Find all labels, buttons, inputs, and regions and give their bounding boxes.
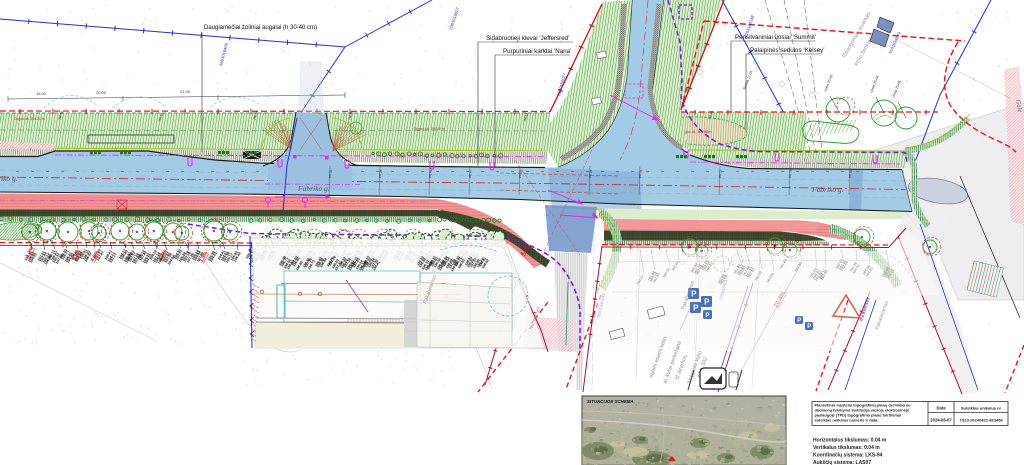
svg-text:P: P: [693, 304, 699, 313]
svg-text:Uosis 25-04: Uosis 25-04: [869, 75, 880, 93]
svg-text:0100160027: 0100160027: [556, 72, 567, 96]
svg-text:Suteiktas unikalus nr: Suteiktas unikalus nr: [961, 406, 1002, 411]
svg-text:PK 43: PK 43: [428, 169, 433, 178]
svg-text:15.00: 15.00: [36, 91, 47, 96]
svg-text:SITUACIJOS SCHEMA: SITUACIJOS SCHEMA: [587, 399, 634, 404]
svg-text:21.00: 21.00: [180, 89, 191, 94]
svg-text:PK 38: PK 38: [378, 169, 383, 178]
svg-text:P: P: [807, 324, 811, 330]
svg-text:PK 79: PK 79: [788, 169, 793, 178]
svg-text:Fabriko g.: Fabriko g.: [297, 184, 330, 193]
svg-text:Fabriko g.: Fabriko g.: [0, 174, 18, 183]
svg-text:P: P: [704, 298, 710, 307]
svg-text:Dugno alt. 154.20 m: Dugno alt. 154.20 m: [14, 117, 45, 121]
svg-text:20.00: 20.00: [96, 90, 107, 95]
svg-text:0301016027: 0301016027: [448, 6, 460, 30]
svg-text:PK 47: PK 47: [468, 169, 473, 178]
svg-text:Purpuriniai karklai ‘Nana’: Purpuriniai karklai ‘Nana’: [503, 48, 571, 55]
svg-text:suteiktas unikalus numeris ir: suteiktas unikalus numeris ir data.: [815, 418, 879, 423]
svg-text:Fabriko g.: Fabriko g.: [811, 185, 844, 194]
svg-text:Koordinačių sistema: LKS-94: Koordinačių sistema: LKS-94: [813, 453, 883, 459]
svg-text:PK 64: PK 64: [638, 169, 643, 178]
svg-text:PK 59: PK 59: [588, 169, 593, 178]
svg-text:Sedula 12-01: Sedula 12-01: [742, 70, 753, 90]
svg-text:6501016406: 6501016406: [218, 42, 229, 66]
svg-text:Horizontalus tikslumas: 0.04: Horizontalus tikslumas: 0.04 m: [813, 438, 887, 444]
svg-text:PK 72: PK 72: [718, 169, 723, 178]
svg-text:PK 85: PK 85: [848, 169, 853, 178]
svg-text:P: P: [706, 313, 710, 319]
svg-text:PK 52: PK 52: [518, 169, 523, 178]
svg-text:TS23-20240422-823456: TS23-20240422-823456: [959, 418, 1003, 423]
svg-text:Sidabruotieji klevai ‘Jeffersr: Sidabruotieji klevai ‘Jeffersred’: [486, 35, 569, 42]
svg-text:PK 33: PK 33: [328, 169, 333, 178]
svg-text:Pensilvaniniai uosiai ‘Summit’: Pensilvaniniai uosiai ‘Summit’: [735, 34, 816, 41]
svg-text:Palaipinės sedulos ‘Kelsey’: Palaipinės sedulos ‘Kelsey’: [750, 47, 825, 54]
svg-text:Uosis 25-03: Uosis 25-03: [823, 74, 834, 92]
svg-text:Pakabinamas: Pakabinamas: [874, 300, 890, 331]
svg-text:Išsaugomas esamas: Išsaugomas esamas: [842, 11, 873, 59]
svg-text:Uosis 25-05: Uosis 25-05: [891, 80, 902, 98]
svg-text:Data: Data: [936, 406, 946, 411]
svg-text:2024-06-07: 2024-06-07: [930, 418, 952, 423]
svg-text:Vertikalus tikslumas: 0.04 m: Vertikalus tikslumas: 0.04 m: [813, 445, 880, 451]
svg-text:9101834649: 9101834649: [887, 31, 902, 55]
svg-text:Dugno alt. 156.60 m: Dugno alt. 156.60 m: [414, 127, 445, 131]
svg-text:Daugiamečiai žoliniai augalai: Daugiamečiai žoliniai augalai (h 30-40 c…: [204, 25, 317, 31]
svg-text:P: P: [797, 318, 801, 324]
svg-text:Aukščių sistema: LAS07: Aukščių sistema: LAS07: [813, 460, 871, 465]
